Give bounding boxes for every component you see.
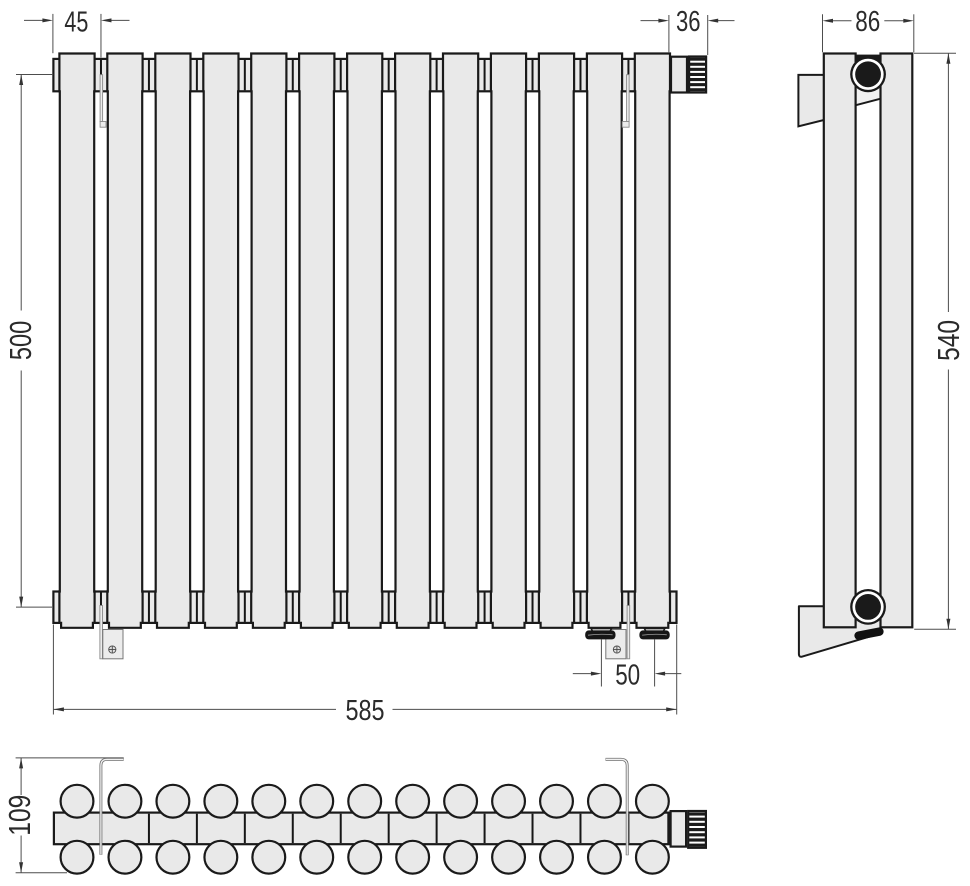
svg-text:86: 86 (855, 6, 880, 38)
svg-text:585: 585 (346, 695, 385, 727)
svg-text:500: 500 (3, 321, 38, 361)
svg-text:36: 36 (676, 6, 701, 38)
svg-text:50: 50 (615, 660, 640, 692)
svg-text:540: 540 (931, 320, 966, 361)
svg-text:109: 109 (2, 795, 37, 836)
svg-text:45: 45 (64, 6, 88, 38)
